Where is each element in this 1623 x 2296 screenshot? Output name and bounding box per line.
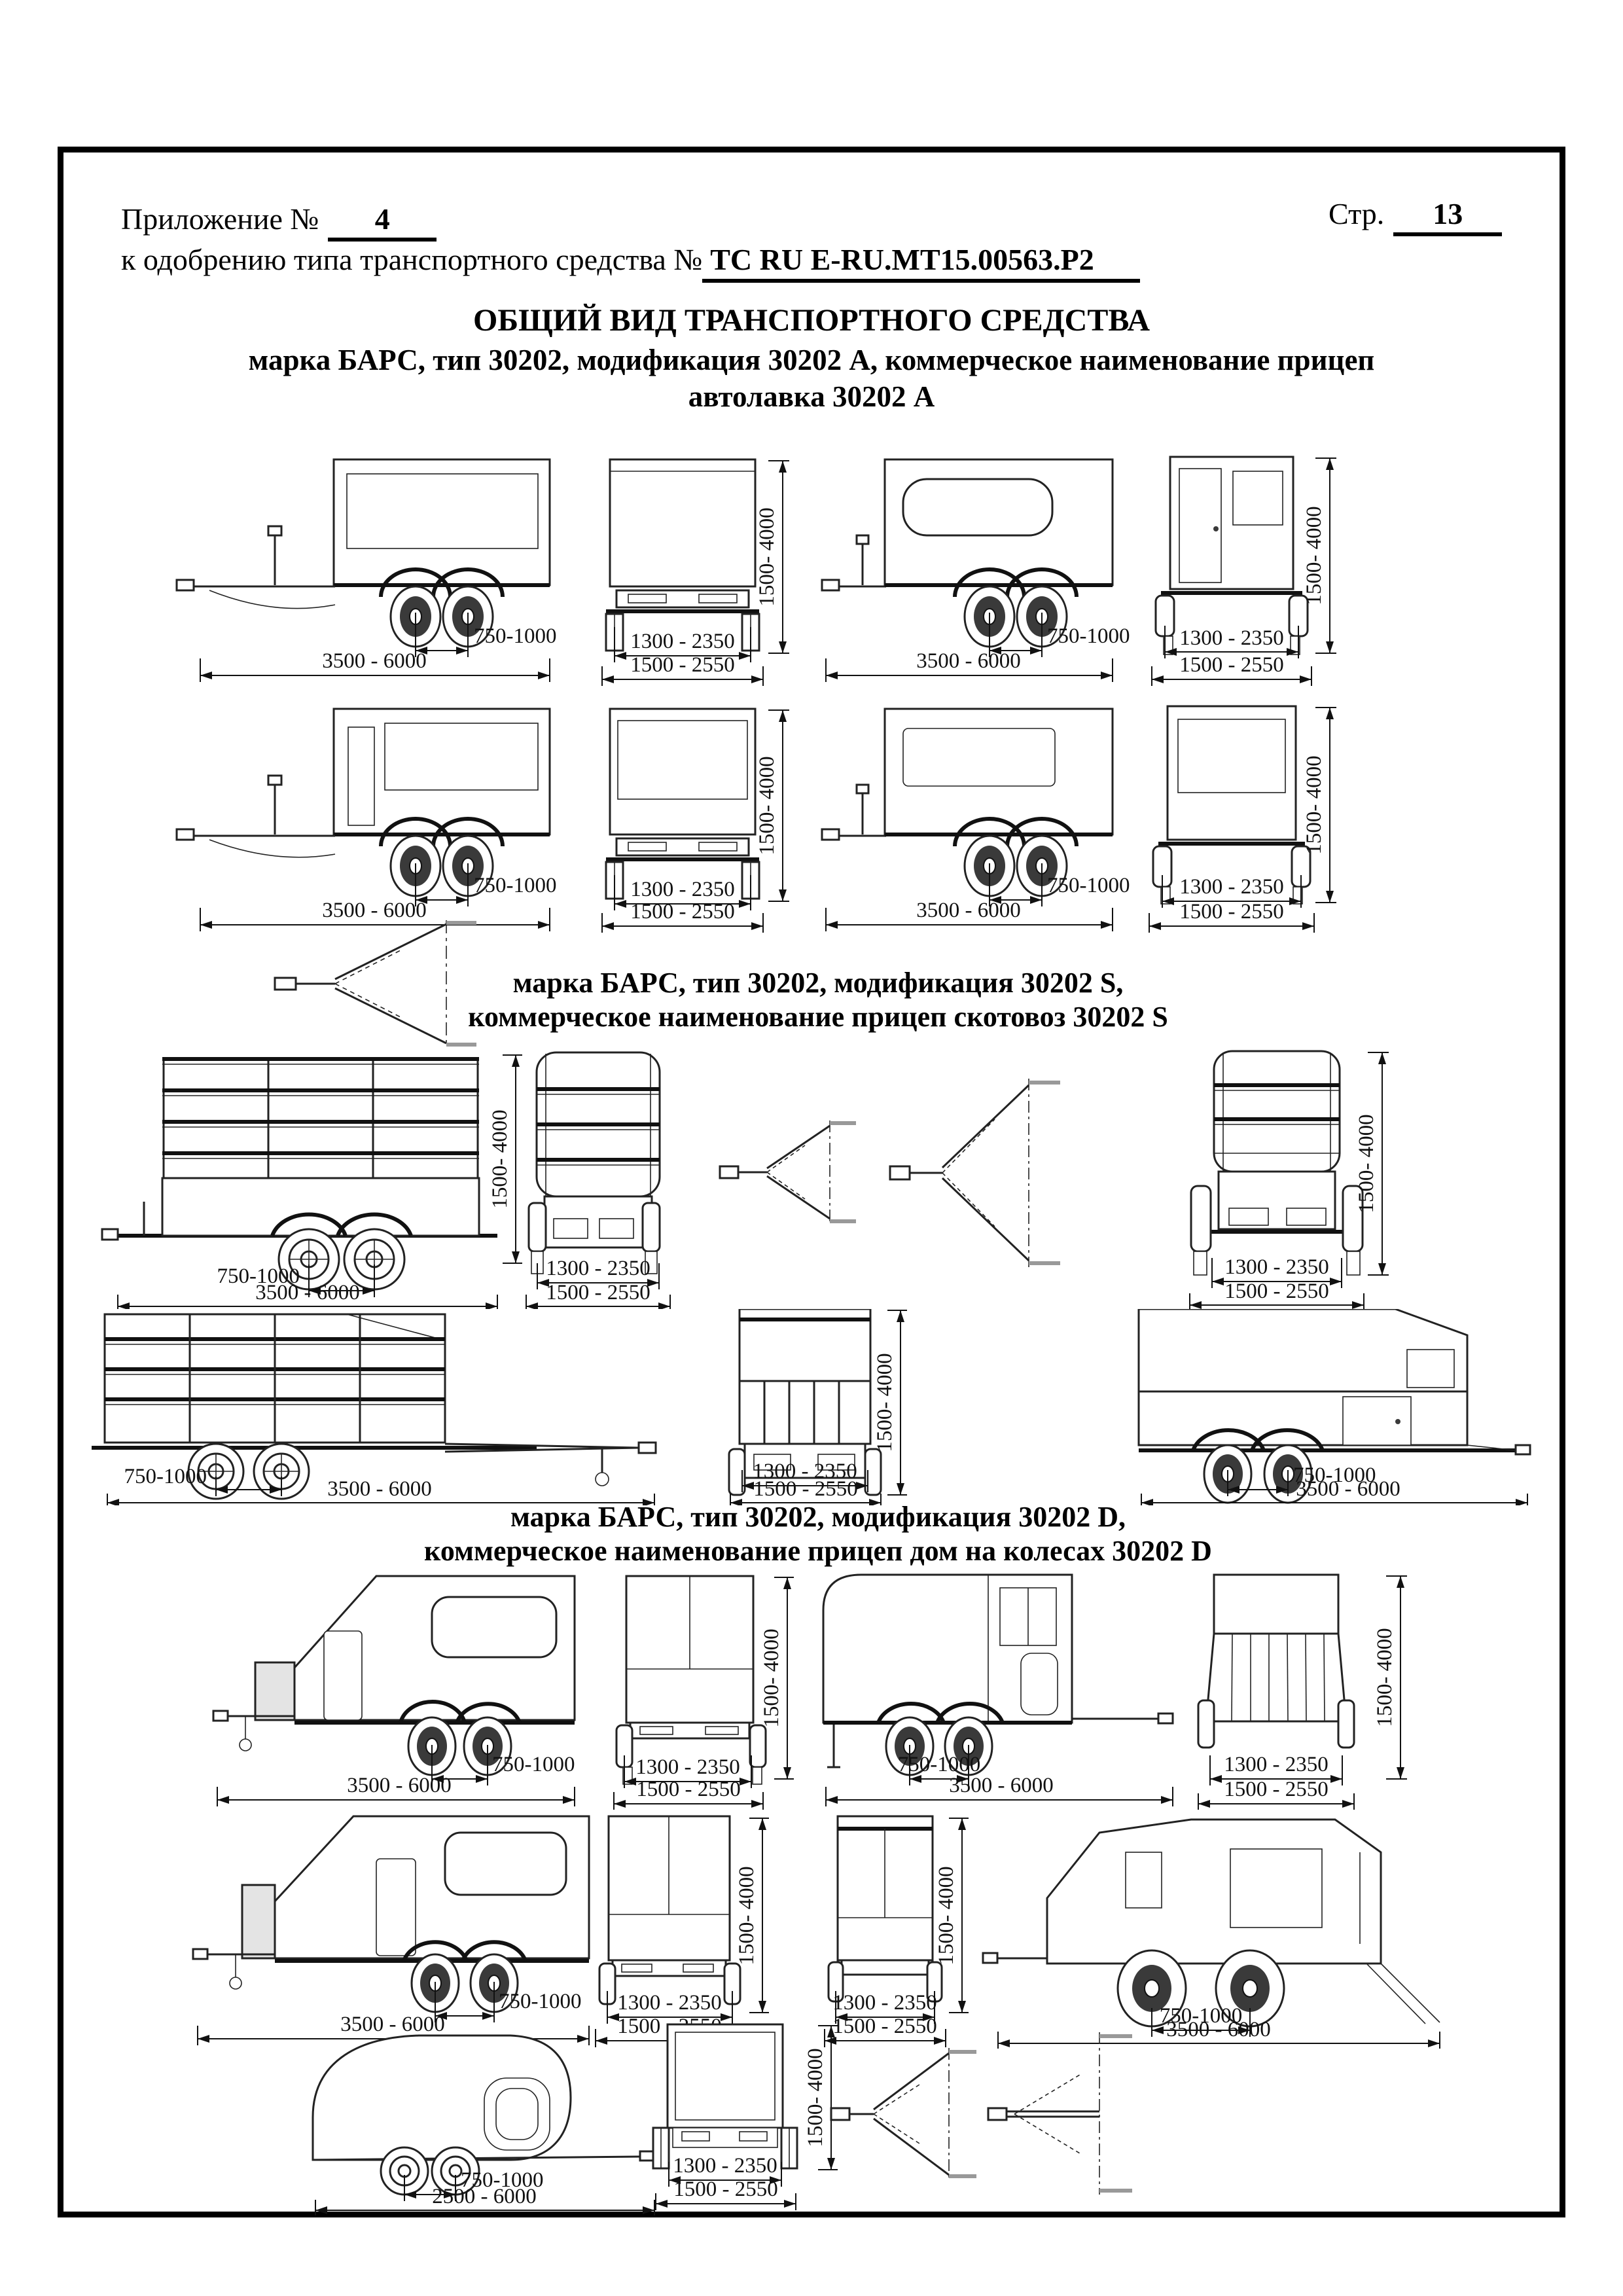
dim-label: 1500 - 2550: [546, 1281, 651, 1304]
dim-label: 3500 - 6000: [949, 1774, 1054, 1797]
approval-line: к одобрению типа транспортного средства …: [121, 242, 1140, 277]
dim-label: 1300 - 2350: [630, 878, 735, 901]
dim-length: 3500 - 6000: [200, 649, 550, 682]
appendix-number: 4: [328, 202, 437, 242]
dim-label: 1300 - 2350: [635, 1755, 740, 1779]
dim-label: 1500- 4000: [755, 507, 779, 606]
drawing-row-1: 750-1000 3500 - 6000 1300 - 2350 1500 - …: [79, 445, 1544, 691]
dim-label: 750-1000: [492, 1753, 575, 1776]
camper-front-view-2: 1300 - 2350 1500 - 2550 1500- 4000: [596, 1816, 769, 2047]
big-livestock-side-view: 750-1000 3500 - 6000: [92, 1314, 656, 1505]
dim-label: 750-1000: [1047, 624, 1130, 648]
dim-label: 1500- 4000: [1302, 506, 1326, 605]
dim-width: 1500 - 2550: [1190, 1280, 1364, 1309]
approval-label: к одобрению типа транспортного средства …: [121, 243, 702, 276]
approval-number: ТС RU E-RU.MT15.00563.P2: [702, 243, 1139, 283]
page-number-line: Стр.13: [1329, 196, 1502, 236]
section-d-line1: марка БАРС, тип 30202, модификация 30202…: [105, 1500, 1531, 1534]
dim-label: 3500 - 6000: [322, 649, 427, 673]
van-trailer-front-view-1: 1300 - 2350 1500 - 2550 1500- 4000: [602, 709, 789, 933]
dim-height: 1500- 4000: [1373, 1576, 1407, 1779]
dim-height: 1500- 4000: [755, 710, 789, 901]
dim-label: 1500 - 2550: [673, 2178, 778, 2201]
camper-side-view-1: 750-1000 3500 - 6000: [213, 1576, 575, 1806]
dim-label: 750-1000: [499, 1990, 582, 2013]
dim-label: 1500- 4000: [755, 756, 779, 855]
dim-label: 1500 - 2550: [1224, 1280, 1329, 1303]
drawing-row-4: 750-1000 3500 - 6000 1500- 4000 1300 - 2…: [79, 1047, 1544, 1309]
dim-label: 750-1000: [1047, 874, 1130, 897]
dim-label: 750-1000: [898, 1753, 981, 1776]
main-title: ОБЩИЙ ВИД ТРАНСПОРТНОГО СРЕДСТВА: [0, 302, 1623, 338]
appendix-label: Приложение №: [121, 202, 319, 236]
drawing-row-8: 750-1000 2500 - 6000 1300 - 2350 1500 - …: [79, 2019, 1544, 2215]
drawbar-top-view-large: [890, 1079, 1060, 1267]
dim-label: 1300 - 2350: [1179, 626, 1284, 650]
van-trailer-side-view-1: 750-1000 3500 - 6000: [177, 709, 557, 931]
page-number: 13: [1393, 196, 1502, 236]
section-s-line1: марка БАРС, тип 30202, модификация 30202…: [105, 966, 1531, 1000]
dim-height: 1500- 4000: [804, 2026, 838, 2170]
dim-label: 1300 - 2350: [673, 2154, 777, 2178]
slat-gate-rear-view: 1300 - 2350 1500 - 2550 1500- 4000: [1198, 1575, 1407, 1810]
dim-label: 1300 - 2350: [1224, 1255, 1329, 1279]
drawing-row-5: 750-1000 3500 - 6000 1300 - 2350 1500 - …: [79, 1309, 1544, 1505]
dim-length: 3500 - 6000: [118, 1281, 497, 1309]
section-s-line2: коммерческое наименование прицеп скотово…: [105, 1000, 1531, 1034]
dim-label: 1300 - 2350: [617, 1991, 722, 2015]
subtitle-line2: автолавка 30202 А: [0, 380, 1623, 414]
dim-label: 1500 - 2550: [1224, 1778, 1329, 1801]
drawing-row-2: 750-1000 3500 - 6000 1300 - 2350 1500 - …: [79, 691, 1544, 936]
dim-width: 1500 - 2550: [1152, 653, 1311, 686]
dim-label: 3500 - 6000: [1296, 1477, 1400, 1501]
dim-label: 3500 - 6000: [255, 1281, 360, 1304]
dim-label: 1500 - 2550: [630, 653, 735, 677]
page-label: Стр.: [1329, 197, 1384, 230]
section-d-line2: коммерческое наименование прицеп дом на …: [105, 1534, 1531, 1568]
camper-side-view-2: 750-1000 3500 - 6000: [193, 1816, 589, 2045]
dim-width: 1500 - 2550: [656, 2178, 796, 2210]
dim-label: 1300 - 2350: [1224, 1753, 1329, 1776]
teardrop-camper-side-view: 750-1000 2500 - 6000: [313, 2036, 654, 2215]
appendix-line: Приложение №4: [121, 202, 437, 242]
camper-front-view-1: 1300 - 2350 1500 - 2550 1500- 4000: [614, 1576, 794, 1810]
dim-label: 750-1000: [124, 1465, 207, 1488]
dim-label: 1500- 4000: [760, 1628, 783, 1727]
dim-label: 750-1000: [474, 624, 557, 648]
dim-label: 1500- 4000: [1373, 1628, 1397, 1727]
drawbar-top-view-pole: [988, 2032, 1132, 2195]
section-s-heading: марка БАРС, тип 30202, модификация 30202…: [105, 966, 1531, 1034]
dim-label: 1500 - 2550: [753, 1477, 858, 1501]
box-trailer-side-view-1: 750-1000 3500 - 6000: [177, 459, 557, 682]
drawing-row-7: 750-1000 3500 - 6000 1300 - 2350 1500 - …: [79, 1813, 1544, 2049]
dim-label: 1500 - 2550: [636, 1778, 741, 1801]
dim-width: 1500 - 2550: [526, 1281, 670, 1309]
dim-label: 1300 - 2350: [546, 1257, 651, 1280]
dim-label: 1500- 4000: [735, 1866, 758, 1965]
drawing-row-6: 750-1000 3500 - 6000 1300 - 2350 1500 - …: [79, 1571, 1544, 1810]
dim-label: 1300 - 2350: [630, 630, 735, 653]
box-trailer-rear-view-1: 1300 - 2350 1500 - 2550 1500- 4000: [1152, 457, 1336, 686]
dim-label: 1500- 4000: [1355, 1114, 1378, 1213]
offroad-camper-side-view: 750-1000 3500 - 6000: [983, 1820, 1440, 2049]
dim-length: 3500 - 6000: [826, 1774, 1173, 1806]
dim-label: 1300 - 2350: [1179, 875, 1284, 899]
livestock-trailer-side-view: 750-1000 3500 - 6000: [102, 1058, 497, 1309]
drawbar-top-view-small: [720, 1121, 856, 1224]
dim-label: 3500 - 6000: [327, 1477, 432, 1501]
dim-label: 1500- 4000: [873, 1353, 897, 1452]
dim-height: 1500- 4000: [488, 1055, 522, 1263]
dim-height: 1500- 4000: [755, 461, 789, 653]
dim-label: 1500- 4000: [935, 1866, 958, 1965]
dim-label: 1500- 4000: [488, 1109, 512, 1208]
box-trailer-front-view-1: 1300 - 2350 1500 - 2550 1500- 4000: [602, 459, 789, 686]
livestock-trailer-front-view: 1500- 4000 1300 - 2350 1500 - 2550: [488, 1052, 670, 1309]
dim-label: 1300 - 2350: [832, 1991, 937, 2015]
drawbar-top-view-v: [831, 2048, 976, 2180]
document-page: Приложение №4 Стр.13 к одобрению типа тр…: [0, 0, 1623, 2296]
dim-label: 1500- 4000: [804, 2048, 827, 2147]
dim-length-teardrop: 2500 - 6000: [315, 2185, 654, 2215]
van-trailer-rear-view-1: 1300 - 2350 1500 - 2550 1500- 4000: [1149, 706, 1336, 933]
van-trailer-side-view-2: 750-1000 3500 - 6000: [822, 709, 1130, 931]
dim-label: 750-1000: [474, 874, 557, 897]
teardrop-rear-view: 1300 - 2350 1500 - 2550 1500- 4000: [653, 2024, 838, 2210]
horse-trailer-side-view: 750-1000 3500 - 6000: [823, 1575, 1173, 1806]
dim-length: 3500 - 6000: [826, 649, 1113, 682]
box-van-side-view: 750-1000 3500 - 6000: [1139, 1309, 1530, 1505]
dim-length: 3500 - 6000: [217, 1774, 575, 1806]
dim-label: 1500 - 2550: [1179, 653, 1284, 677]
section-d-heading: марка БАРС, тип 30202, модификация 30202…: [105, 1500, 1531, 1568]
dim-label: 3500 - 6000: [916, 649, 1021, 673]
dim-label: 2500 - 6000: [432, 2185, 537, 2208]
livestock-trailer-rear-view: 1300 - 2350 1500 - 2550 1500- 4000: [1190, 1051, 1389, 1309]
big-livestock-front-view: 1300 - 2350 1500 - 2550 1500- 4000: [729, 1309, 907, 1505]
subtitle-line1: марка БАРС, тип 30202, модификация 30202…: [0, 343, 1623, 377]
camper-front-view-3: 1300 - 2350 1500 - 2550 1500- 4000: [825, 1816, 969, 2047]
dim-label: 3500 - 6000: [347, 1774, 452, 1797]
dim-label: 1500- 4000: [1302, 755, 1326, 854]
box-trailer-side-view-2: 750-1000 3500 - 6000: [822, 459, 1130, 682]
